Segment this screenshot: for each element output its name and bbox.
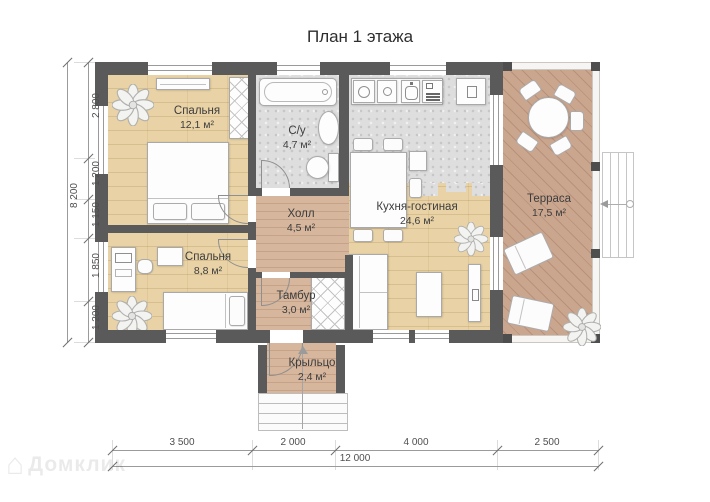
dim-label: 4 000	[403, 437, 428, 448]
faucet	[410, 82, 413, 85]
room-area: 3,0 м²	[276, 303, 315, 317]
watermark-house-icon: ⌂	[6, 450, 24, 480]
floor-plan-canvas: План 1 этажа	[0, 0, 710, 502]
wall-hall-left	[248, 222, 256, 240]
room-name: Кухня-гостиная	[376, 200, 457, 214]
terrace-post	[591, 162, 600, 171]
plant-icon	[454, 222, 488, 256]
stove	[422, 80, 443, 103]
dim-label-left-total: 8 200	[69, 183, 80, 208]
wall-bathroom-kitchen	[339, 75, 349, 196]
room-area: 4,5 м²	[287, 221, 315, 235]
wardrobe	[311, 276, 345, 330]
dim-label: 3 500	[169, 437, 194, 448]
wall-bathroom-bottom	[248, 188, 262, 196]
fridge-icon	[467, 86, 477, 98]
window	[390, 62, 446, 75]
dim-label: 1 850	[91, 253, 102, 278]
wall-bedroom1-bathroom	[248, 75, 256, 188]
dining-chair	[353, 138, 373, 151]
bed-fold-line	[225, 294, 226, 328]
room-area: 2,4 м²	[289, 370, 336, 384]
watermark: ⌂ Домклик	[6, 450, 126, 480]
room-name: С/у	[283, 124, 311, 138]
dim-label: 2 500	[534, 437, 559, 448]
room-label-hall: Холл 4,5 м²	[287, 207, 315, 235]
side-table	[409, 151, 427, 171]
dishwasher-dial	[383, 87, 392, 96]
dim-label: 2 000	[280, 437, 305, 448]
kitchen-sink-basin	[405, 86, 418, 100]
kitchen-sink	[401, 80, 420, 103]
plant-icon	[563, 308, 601, 346]
wall-porch-left	[258, 345, 267, 393]
terrace-post	[591, 249, 600, 258]
desk-monitor	[115, 253, 132, 263]
wall-bathroom-bottom	[290, 188, 349, 196]
window	[490, 237, 503, 290]
bathtub-drain	[322, 89, 328, 95]
terrace-post	[503, 62, 512, 71]
window	[277, 62, 320, 75]
room-label-terrace: Терраса 17,5 м²	[527, 192, 571, 220]
room-name: Тамбур	[276, 289, 315, 303]
floor-kitchen-tile-edge	[446, 183, 466, 192]
stove-burner	[426, 83, 433, 89]
lounge-back-line	[519, 299, 525, 324]
dim-label: 1 150	[91, 202, 102, 227]
sofa-cushion-line	[360, 292, 387, 293]
terrace-post	[503, 334, 512, 343]
bed-single	[163, 292, 248, 330]
porch-steps	[258, 393, 348, 431]
dim-label: 1 200	[91, 161, 102, 186]
desk-chair	[137, 259, 153, 274]
toilet-tank	[328, 153, 339, 182]
dining-chair	[383, 229, 403, 242]
fridge	[456, 78, 486, 105]
round-table	[528, 97, 569, 138]
radiator-line	[160, 84, 206, 85]
wall-tambour-kitchen	[345, 255, 353, 330]
nightstand	[157, 247, 183, 266]
tv-icon	[472, 289, 479, 301]
room-name: Крыльцо	[289, 356, 336, 370]
dim-label-bottom-total: 12 000	[340, 453, 371, 464]
sink	[318, 111, 339, 145]
room-name: Спальня	[185, 250, 231, 264]
stairs-arrow-head	[600, 200, 608, 208]
terrace-edge-top	[503, 62, 600, 70]
wall-hall-tambour	[290, 272, 349, 278]
room-label-kitchen-living: Кухня-гостиная 24,6 м²	[376, 200, 457, 228]
room-label-bedroom-2: Спальня 8,8 м²	[185, 250, 231, 278]
dim-extension-line	[74, 301, 95, 302]
washing-machine-door	[358, 86, 370, 98]
dining-chair	[353, 229, 373, 242]
page-title: План 1 этажа	[95, 27, 625, 47]
window	[148, 62, 212, 75]
dim-extension-line	[74, 238, 95, 239]
room-area: 4,7 м²	[283, 138, 311, 152]
desk	[111, 247, 136, 292]
terrace-chair	[570, 111, 584, 131]
dishwasher	[377, 80, 397, 103]
room-name: Терраса	[527, 192, 571, 206]
stairs-arrow-origin	[626, 200, 634, 208]
wardrobe	[229, 77, 249, 139]
tv-stand	[468, 264, 481, 322]
terrace-post	[591, 62, 600, 71]
room-area: 12,1 м²	[174, 118, 220, 132]
terrace-door	[490, 95, 503, 165]
room-area: 24,6 м²	[376, 214, 457, 228]
room-label-tambour: Тамбур 3,0 м²	[276, 289, 315, 317]
plant-icon	[112, 84, 154, 126]
dining-chair	[409, 178, 422, 198]
room-label-bedroom-1: Спальня 12,1 м²	[174, 104, 220, 132]
window	[166, 330, 216, 343]
dim-line-bottom-segments	[112, 450, 599, 451]
dim-extension-line	[74, 158, 95, 159]
pillow	[153, 203, 187, 220]
bed-double	[147, 142, 229, 224]
dim-label: 1 200	[91, 305, 102, 330]
watermark-text: Домклик	[28, 453, 126, 477]
dim-label: 2 800	[91, 93, 102, 118]
washing-machine	[353, 80, 375, 103]
dining-chair	[383, 138, 403, 151]
entrance-door-opening	[270, 330, 303, 343]
room-name: Холл	[287, 207, 315, 221]
radiator	[156, 78, 210, 90]
room-name: Спальня	[174, 104, 220, 118]
entry-arrow-head	[298, 346, 308, 354]
wall-porch-right	[336, 345, 345, 393]
toilet-bowl	[306, 156, 329, 179]
dim-extension-line	[74, 342, 95, 343]
floor-kitchen-tile-edge	[472, 183, 490, 196]
room-label-porch: Крыльцо 2,4 м²	[289, 356, 336, 384]
room-area: 17,5 м²	[527, 206, 571, 220]
dim-extension-line	[74, 62, 95, 63]
room-area: 8,8 м²	[185, 264, 231, 278]
pillow	[229, 296, 245, 326]
dim-line-bottom-total	[112, 466, 599, 467]
lounge-back-line	[515, 246, 526, 269]
window	[373, 330, 409, 343]
terrace-edge-right	[592, 62, 600, 343]
wall-hall-left	[248, 268, 256, 330]
desk-item	[115, 269, 132, 277]
sofa	[349, 254, 388, 330]
dim-line-left-total	[67, 62, 68, 343]
room-label-bathroom: С/у 4,7 м²	[283, 124, 311, 152]
coffee-table	[416, 272, 442, 317]
bed-fold-line	[148, 198, 228, 199]
bathtub	[259, 78, 337, 106]
wall-bedroom1-bedroom2	[108, 225, 248, 233]
window	[415, 330, 449, 343]
